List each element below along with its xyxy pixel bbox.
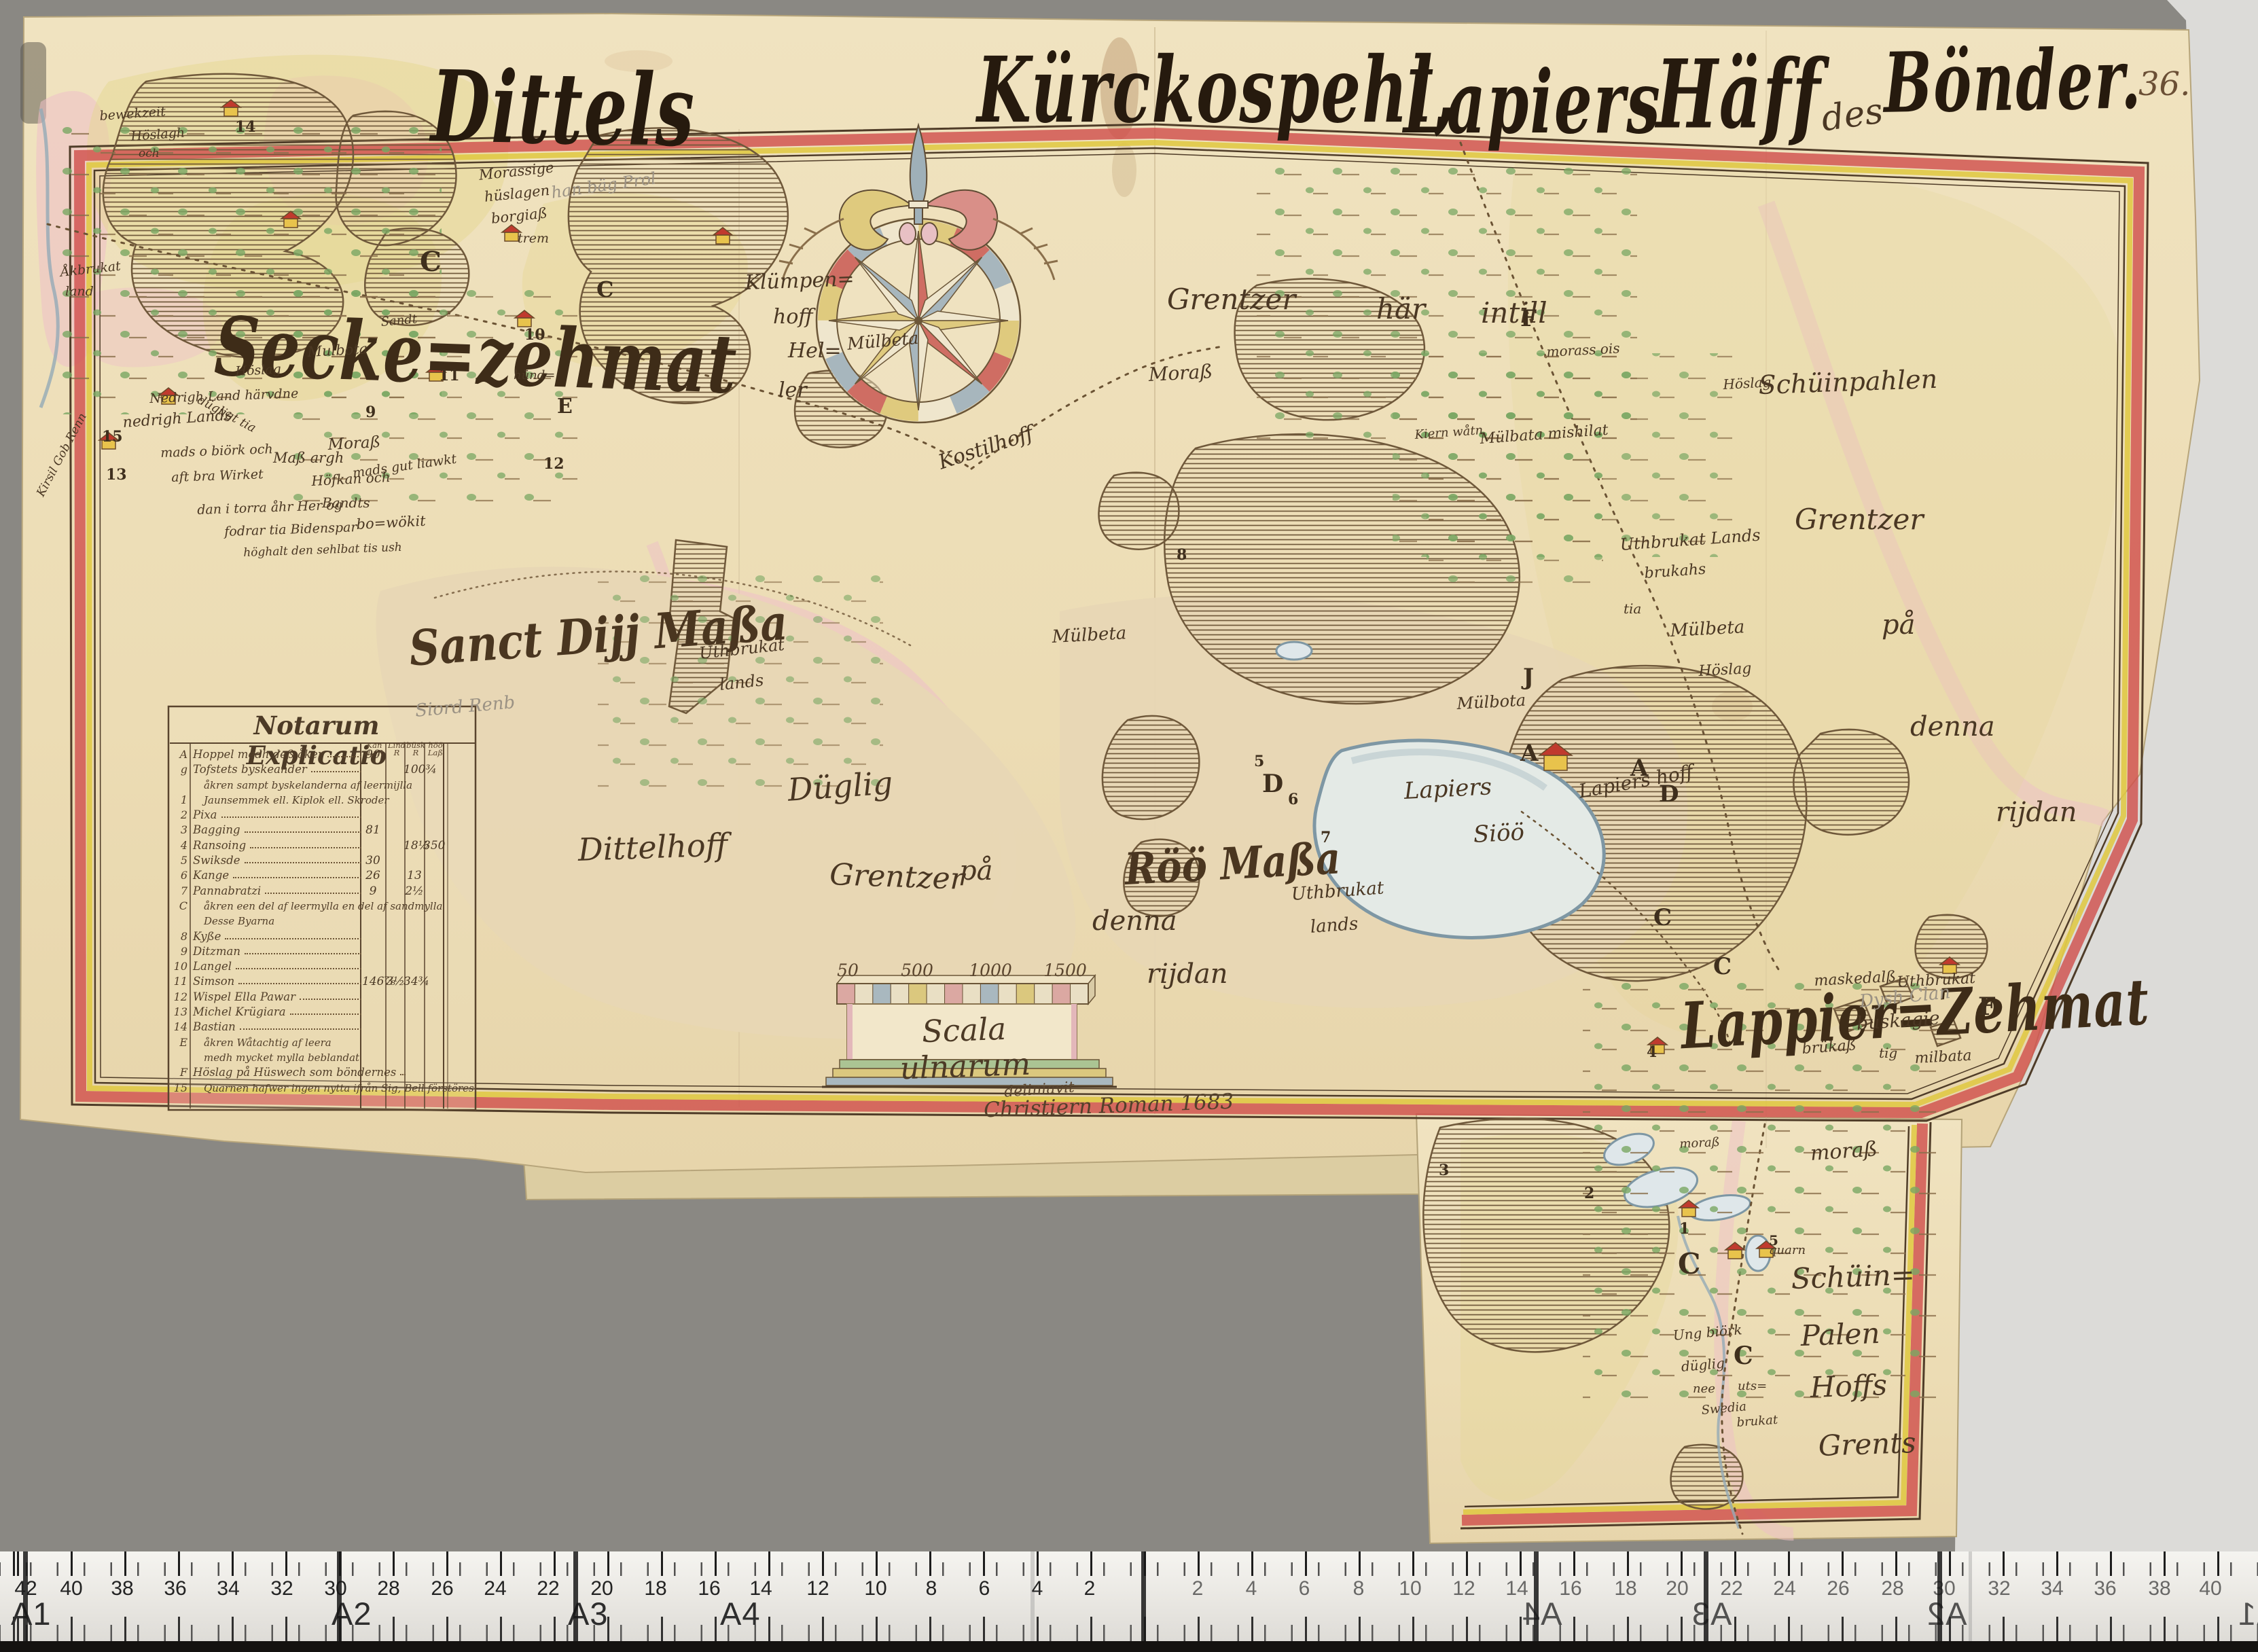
map-label: Sandt <box>380 313 418 329</box>
scale-bar-segment <box>1052 984 1070 1004</box>
map-label: trem <box>518 232 549 245</box>
legend-row-label: medh mycket mylla beblandat <box>193 1052 359 1064</box>
ruler-number: 4 <box>1246 1577 1257 1600</box>
map-label: moraß <box>1810 1139 1878 1164</box>
map-label: 4 <box>1647 1045 1657 1060</box>
map-label: 1 <box>1679 1221 1689 1236</box>
legend-row-label: Bastian <box>193 1020 236 1033</box>
map-label: milbata <box>1914 1049 1972 1066</box>
map-label: F <box>1520 307 1537 330</box>
map-label: nee <box>1693 1383 1715 1395</box>
map-label: 5 <box>1769 1234 1778 1247</box>
title-word: Kürckospehl, <box>977 45 1457 135</box>
legend-row-index: A <box>171 748 187 761</box>
map-label: Grentzer <box>829 860 965 895</box>
legend-row: 13Michel Krügiara <box>171 1005 473 1020</box>
ruler-number: 20 <box>1666 1577 1688 1600</box>
map-label: C <box>1734 1344 1753 1368</box>
map-label: Grentzer <box>1167 285 1295 314</box>
ruler-number: 24 <box>484 1577 506 1600</box>
ruler-number: 34 <box>217 1577 239 1600</box>
map-label: ler <box>778 380 807 401</box>
ruler-number: 34 <box>2041 1577 2063 1600</box>
legend-row-index: 13 <box>171 1005 187 1018</box>
map-label: intill <box>1481 299 1547 327</box>
map-label: denna <box>1092 908 1177 935</box>
title-word: Dittels <box>430 57 696 160</box>
ruler-number: 36 <box>164 1577 186 1600</box>
legend-row: Cåkren een del af leermylla en del af sa… <box>171 899 473 914</box>
ruler-bold-tick <box>23 1551 28 1641</box>
ruler-bold-tick <box>1704 1551 1708 1641</box>
map-label: 6 <box>1288 792 1298 807</box>
map-label: Dittelhoff <box>577 829 728 865</box>
legend-row-index: 15 <box>171 1081 187 1094</box>
legend-row-label: Swiksde <box>193 854 240 867</box>
map-label: 10 <box>524 327 545 342</box>
legend-row-label: Kyße <box>193 930 221 943</box>
map-label: A <box>1630 757 1648 780</box>
ruler-bold-tick <box>337 1551 342 1641</box>
ruler-bold-tick <box>1937 1551 1942 1641</box>
legend-row-index: E <box>171 1036 187 1049</box>
map-label: och <box>139 148 160 160</box>
legend-row: 1Jaunsemmek ell. Kiplok ell. Skroder <box>171 793 473 808</box>
map-label: Höslag <box>1698 662 1752 679</box>
legend-row-label: åkren sampt byskelanderna af leermijlla <box>193 779 412 791</box>
map-label: rijdan <box>1996 799 2077 826</box>
scale-bar-caption: Scala ulnarum <box>875 1009 1054 1087</box>
scale-bar-tick-label: 1000 <box>969 960 1012 980</box>
map-label: Mülbeta <box>1052 624 1127 646</box>
map-label: 13 <box>106 467 127 482</box>
legend-row-index: g <box>171 763 187 776</box>
map-label: uts= <box>1738 1380 1767 1393</box>
map-label: Höslag <box>1723 375 1772 391</box>
scale-bar-segment <box>837 984 855 1004</box>
map-label: Grentzer <box>1795 505 1923 534</box>
legend-row: åkren sampt byskelanderna af leermijlla <box>171 778 473 793</box>
map-label: tig <box>1879 1046 1897 1060</box>
legend-row-index: 1 <box>171 793 187 806</box>
ruler-number: 40 <box>60 1577 82 1600</box>
ruler-format-label: A3 <box>1691 1595 1732 1632</box>
map-label: 12 <box>543 456 564 471</box>
map-label: lands <box>1310 915 1359 936</box>
legend-row: 12Wispel Ella Pawar <box>171 990 473 1005</box>
legend-table: Notarum Explicatio Kan dy RLind Rbüsk Rh… <box>168 706 476 1110</box>
ruler-number: 2 <box>1084 1577 1096 1600</box>
map-label: Bandts <box>322 496 370 509</box>
ruler-bold-tick <box>573 1551 578 1641</box>
map-label: Schüin= <box>1791 1261 1915 1293</box>
map-label: aft bra Wirket <box>171 468 264 484</box>
map-label: 7 <box>1321 830 1331 845</box>
map-label: E <box>557 397 573 417</box>
legend-row-value: 34¾ <box>404 975 425 988</box>
legend-row-index: 9 <box>171 945 187 958</box>
ruler-format-label: A4 <box>1522 1595 1562 1632</box>
scale-bar-segment <box>1071 984 1088 1004</box>
map-label: denna <box>1910 713 1995 740</box>
legend-row: 9Ditzman <box>171 944 473 959</box>
ruler-number: 16 <box>698 1577 720 1600</box>
legend-row: 2Pixa <box>171 808 473 823</box>
ruler-bold-tick <box>1534 1551 1539 1641</box>
legend-row-value: 9 <box>362 884 384 898</box>
map-label: morass ois <box>1546 341 1620 359</box>
ruler-number: 24 <box>1773 1577 1795 1600</box>
legend-row-index: 3 <box>171 823 187 836</box>
ruler-number: 28 <box>1881 1577 1903 1600</box>
map-label: Moraß <box>1148 362 1213 384</box>
map-label: Mülbota <box>1456 692 1526 712</box>
legend-row-index: 7 <box>171 884 187 897</box>
legend-row-index: 11 <box>171 975 187 988</box>
legend-row-value: 2½ <box>404 884 425 898</box>
legend-row-index: 5 <box>171 854 187 867</box>
ruler-number: 38 <box>111 1577 133 1600</box>
map-label: C <box>596 279 613 300</box>
map-label: Palen <box>1800 1319 1880 1350</box>
ruler-number: 10 <box>864 1577 886 1600</box>
scale-bar-segment <box>909 984 927 1004</box>
scale-bar-segment <box>891 984 908 1004</box>
legend-row-label: Hoppel medh deß åker <box>193 748 323 761</box>
legend-row-label: Jaunsemmek ell. Kiplok ell. Skroder <box>193 794 389 806</box>
scanned-map-page: 36. DittelsKürckospehl,LapiersHäffdesBön… <box>0 0 2258 1652</box>
map-label: C <box>1678 1250 1700 1278</box>
map-label: 11 <box>439 368 460 383</box>
map-label: buskagie <box>1856 1009 1940 1033</box>
legend-row-label: Tofstets byskeander <box>193 763 307 776</box>
legend-row-label: Michel Krügiara <box>193 1005 286 1018</box>
title-word: Lapiers <box>1403 58 1662 145</box>
map-label: Siöö <box>1473 821 1525 846</box>
legend-row-label: Bagging <box>193 823 240 836</box>
scale-bar-tick-label: 50 <box>837 960 859 980</box>
legend-row-label: Wispel Ella Pawar <box>193 990 295 1003</box>
map-label: brukat <box>1736 1414 1778 1429</box>
map-label: tia <box>1624 602 1641 615</box>
legend-row: Eåkren Wåtachtig af leera <box>171 1035 473 1050</box>
legend-row-label: Langel <box>193 960 232 973</box>
ruler-number: 18 <box>1614 1577 1636 1600</box>
map-label: Klümpen= <box>745 269 855 293</box>
map-label: moraß <box>1679 1136 1720 1151</box>
ruler-format-label: A1 <box>2238 1595 2258 1632</box>
map-label: Mulbota <box>307 342 368 359</box>
scale-bar-segment <box>945 984 963 1004</box>
legend-row-value: 146⅞ <box>362 975 384 988</box>
map-label: A <box>1520 742 1538 765</box>
legend-row: 8Kyße <box>171 929 473 944</box>
legend-row: 4Ransoing18½350 <box>171 838 473 853</box>
legend-row: 6Kange2613 <box>171 868 473 883</box>
map-label: rijdan <box>1147 960 1228 988</box>
legend-rows: AHoppel medh deß åker90gTofstets byskean… <box>171 747 473 1096</box>
map-label: på <box>959 857 992 884</box>
legend-row-label: åkren Wåtachtig af leera <box>193 1037 331 1049</box>
map-label: Höslag <box>235 363 281 378</box>
ruler-format-label: A4 <box>720 1595 761 1632</box>
scale-bar-segment <box>980 984 998 1004</box>
legend-row-value: 90 <box>362 748 384 761</box>
map-label: brükaß <box>1802 1038 1857 1057</box>
map-label: düglig <box>1681 1356 1725 1373</box>
legend-row: AHoppel medh deß åker90 <box>171 747 473 762</box>
map-label: Moraß <box>327 435 381 453</box>
map-label: des <box>1819 93 1885 137</box>
map-label: Lapiers <box>1403 775 1492 803</box>
legend-row: 14Bastian <box>171 1020 473 1035</box>
ruler-number: 8 <box>1353 1577 1365 1600</box>
legend-row-label: Ditzman <box>193 945 240 958</box>
ruler-number: 32 <box>270 1577 293 1600</box>
map-label: D <box>1262 772 1283 796</box>
ruler-number: 12 <box>1452 1577 1475 1600</box>
map-label: C <box>1653 906 1672 929</box>
legend-row: gTofstets byskeander100¾ <box>171 762 473 777</box>
scale-bar-segment <box>963 984 980 1004</box>
map-label: 15 <box>102 429 123 444</box>
legend-row: Desse Byarna <box>171 914 473 929</box>
legend-row-index: 6 <box>171 869 187 882</box>
legend-row-label: Kange <box>193 869 229 882</box>
map-label: 8 <box>1177 547 1187 562</box>
legend-row: FHöslag på Hüswech som böndernes <box>171 1065 473 1080</box>
map-label: här <box>1376 295 1425 323</box>
legend-row-value: 81 <box>362 823 384 837</box>
ruler-number: 36 <box>2094 1577 2116 1600</box>
scale-bar-segment <box>1016 984 1034 1004</box>
scale-bar-segment <box>855 984 872 1004</box>
map-label: hoff <box>773 307 813 327</box>
map-label: Grents <box>1818 1429 1916 1460</box>
ruler-number: 28 <box>377 1577 399 1600</box>
ruler-format-label: A2 <box>1927 1595 1967 1632</box>
map-label: Düglig <box>787 767 894 806</box>
page-number: 36. <box>2138 65 2190 103</box>
ruler-number: 40 <box>2199 1577 2221 1600</box>
map-label: lands <box>719 672 764 693</box>
scale-bar-tick-label: 1500 <box>1043 960 1087 980</box>
ruler-number: 18 <box>644 1577 666 1600</box>
legend-row-label: Pannabratzi <box>193 884 261 897</box>
map-label: på <box>1882 611 1915 639</box>
legend-row: 7Pannabratzi92½ <box>171 884 473 899</box>
legend-row-label: åkren een del af leermylla en del af san… <box>193 900 442 912</box>
legend-row: 15Quarnen hafwer ingen nytta ifrån Sig, … <box>171 1081 473 1096</box>
ruler-number: 6 <box>979 1577 990 1600</box>
scale-bar-segment <box>873 984 891 1004</box>
legend-row: medh mycket mylla beblandat <box>171 1050 473 1065</box>
legend-row-label: Simson <box>193 975 234 988</box>
map-label: 9 <box>365 405 376 420</box>
ruler-number: 38 <box>2148 1577 2170 1600</box>
legend-row-label: Quarnen hafwer ingen nytta ifrån Sig, Be… <box>193 1082 474 1094</box>
scale-bar-segment <box>1035 984 1052 1004</box>
legend-row-value: 30 <box>362 854 384 867</box>
map-label: Hel= <box>788 341 842 361</box>
legend-row-value: 350 <box>423 839 445 852</box>
legend-row-index: C <box>171 899 187 912</box>
map-label: C <box>1713 955 1732 978</box>
ruler-number: 2 <box>1192 1577 1204 1600</box>
title-word: Häff <box>1656 48 1822 142</box>
legend-row-label: Höslag på Hüswech som böndernes <box>193 1066 396 1079</box>
legend-row-value: 13 <box>404 869 425 882</box>
legend-row: 3Bagging81 <box>171 823 473 838</box>
legend-row-value: 26 <box>362 869 384 882</box>
photographic-scale-ruler: 4240383634323028262422201816141210864224… <box>0 1551 2258 1641</box>
scale-bar-segment <box>927 984 944 1004</box>
map-label: hünd= <box>514 370 555 382</box>
title-word: Bönder. <box>1883 37 2143 124</box>
legend-row: 5Swiksde30 <box>171 853 473 868</box>
ruler-number: 26 <box>1827 1577 1849 1600</box>
ruler-number: 6 <box>1299 1577 1310 1600</box>
legend-row: 10Langel <box>171 959 473 974</box>
map-label: Mülbeta <box>1670 618 1745 640</box>
map-label: 2 <box>1584 1186 1594 1201</box>
ruler-number: 4 <box>1032 1577 1043 1600</box>
map-label: C <box>420 249 442 276</box>
map-label: J <box>1523 666 1534 689</box>
legend-row-index: 12 <box>171 990 187 1003</box>
legend-row-value: 18½ <box>404 839 425 852</box>
map-label: 3 <box>1439 1163 1449 1178</box>
paper-stain <box>1112 143 1136 197</box>
map-label: F <box>1978 994 1996 1019</box>
ruler-number: 26 <box>431 1577 453 1600</box>
legend-row-index: 4 <box>171 839 187 852</box>
scan-edge-dark-strip <box>0 1641 2258 1652</box>
map-label: land <box>65 285 94 298</box>
map-label: Schüinpahlen <box>1758 366 1938 398</box>
ruler-number: 8 <box>926 1577 937 1600</box>
map-label: D <box>1659 783 1679 806</box>
legend-row-value: 100¾ <box>404 763 425 776</box>
legend-row-index: F <box>171 1066 187 1079</box>
ruler-overlap-seam <box>1969 1551 1972 1641</box>
ruler-bold-tick <box>1141 1551 1146 1641</box>
ruler-number: 12 <box>806 1577 829 1600</box>
legend-row-index: 14 <box>171 1020 187 1033</box>
legend-row-label: Ransoing <box>193 839 246 852</box>
map-label: 14 <box>235 120 256 134</box>
legend-row-index: 8 <box>171 930 187 943</box>
scale-bar-tick-label: 500 <box>901 960 933 980</box>
legend-row: 11Simson146⅞3½34¾ <box>171 974 473 989</box>
legend-row-label: Desse Byarna <box>193 915 274 927</box>
legend-row-index: 10 <box>171 960 187 973</box>
ruler-number: 16 <box>1559 1577 1581 1600</box>
map-label: bo=wökit <box>356 514 426 532</box>
legend-row-index: 2 <box>171 808 187 821</box>
ruler-number: 10 <box>1399 1577 1421 1600</box>
ruler-number: 22 <box>537 1577 559 1600</box>
map-label: Hoffs <box>1810 1371 1888 1402</box>
ruler-number: 32 <box>1988 1577 2010 1600</box>
map-label: 5 <box>1254 754 1264 769</box>
legend-row-label: Pixa <box>193 808 217 821</box>
scale-bar-segment <box>999 984 1016 1004</box>
ruler-format-label: A1 <box>11 1595 52 1632</box>
